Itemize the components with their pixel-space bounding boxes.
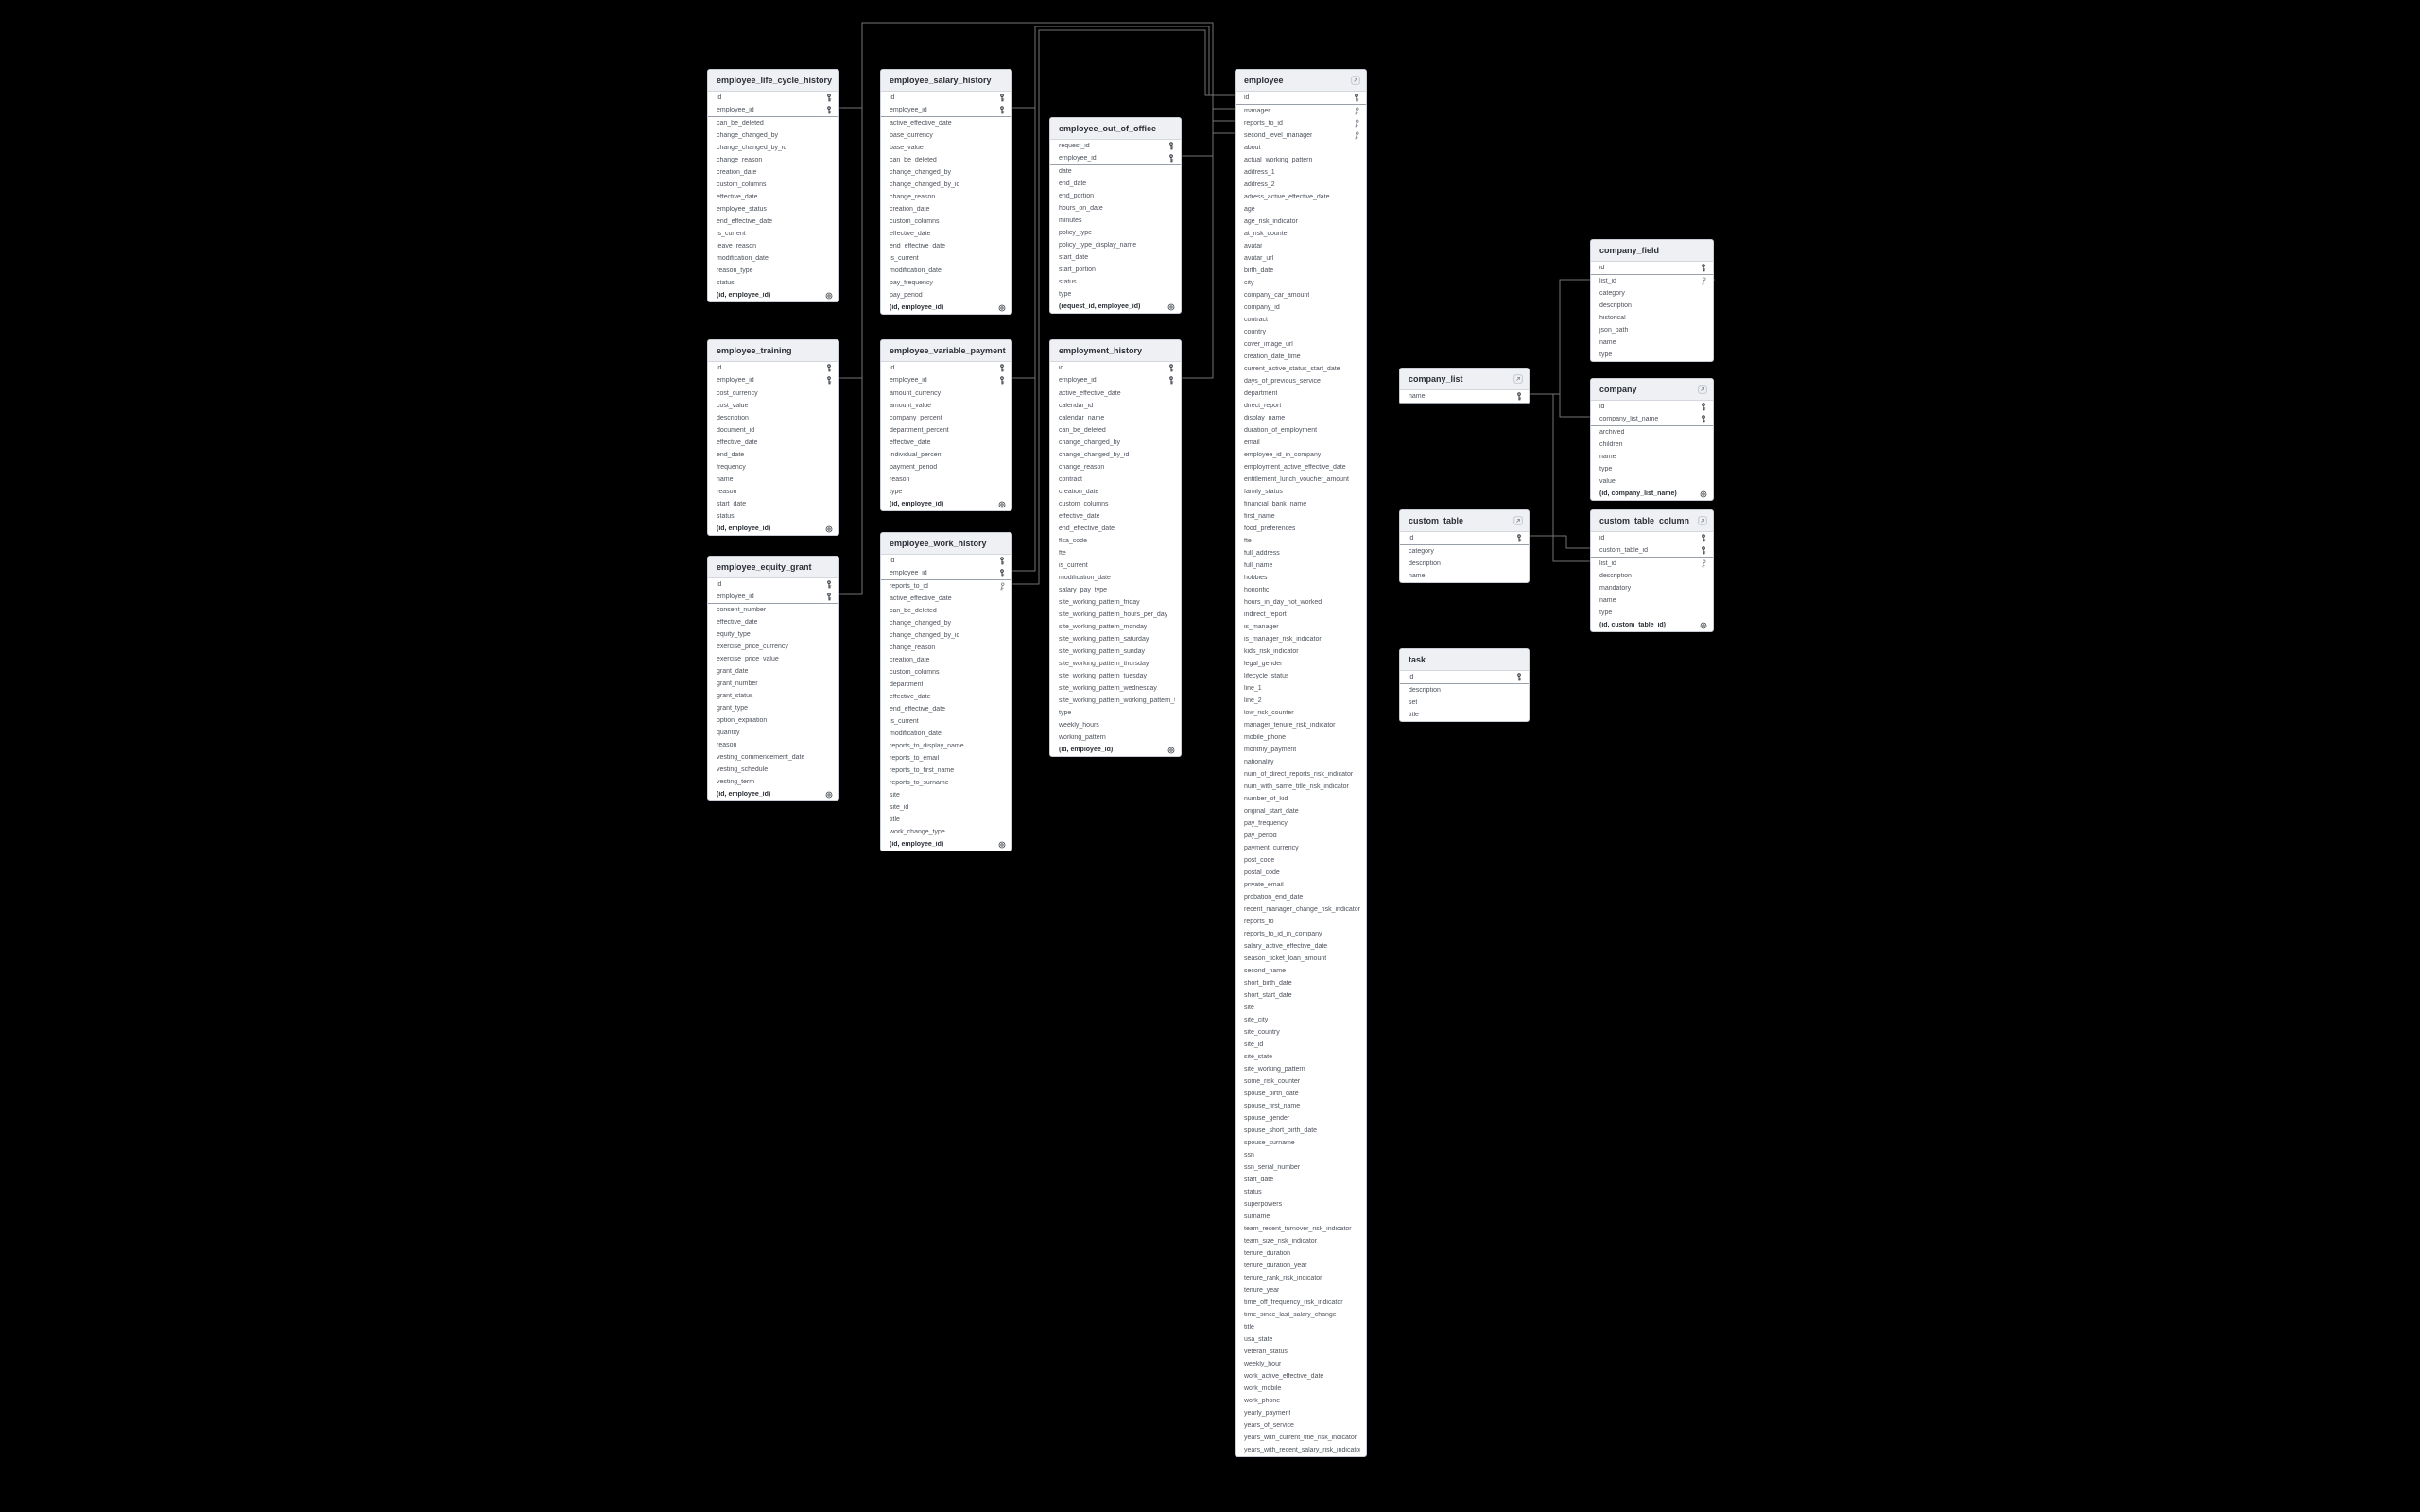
field-row[interactable]: id <box>1591 401 1713 413</box>
field-row[interactable]: number_of_kid <box>1236 793 1366 805</box>
field-row[interactable]: company_id <box>1236 301 1366 314</box>
field-row[interactable]: fte <box>1236 535 1366 547</box>
field-row[interactable]: frequency <box>708 461 838 473</box>
field-row[interactable]: salary_active_effective_date <box>1236 940 1366 953</box>
field-row[interactable]: grant_type <box>708 702 838 714</box>
field-row[interactable]: department <box>881 679 1011 691</box>
field-row[interactable]: site_working_pattern_friday <box>1050 596 1181 609</box>
field-row[interactable]: (id, employee_id) <box>1050 744 1181 756</box>
field-row[interactable]: employee_id <box>708 374 838 387</box>
field-row[interactable]: yearly_payment <box>1236 1407 1366 1419</box>
field-row[interactable]: reason_type <box>708 265 838 277</box>
field-row[interactable]: ssn_serial_number <box>1236 1161 1366 1174</box>
table-header[interactable]: company_list <box>1400 369 1529 390</box>
field-row[interactable]: reason <box>708 486 838 498</box>
field-row[interactable]: employee_id <box>708 104 838 117</box>
field-row[interactable]: active_effective_date <box>1050 387 1181 400</box>
field-row[interactable]: spouse_birth_date <box>1236 1088 1366 1100</box>
field-row[interactable]: start_portion <box>1050 264 1181 276</box>
field-row[interactable]: active_effective_date <box>881 117 1011 129</box>
field-row[interactable]: grant_status <box>708 690 838 702</box>
field-row[interactable]: spouse_first_name <box>1236 1100 1366 1112</box>
field-row[interactable]: low_risk_counter <box>1236 707 1366 719</box>
field-row[interactable]: site_id <box>881 801 1011 814</box>
table-employee_salary_history[interactable]: employee_salary_historyidemployee_idacti… <box>880 69 1012 315</box>
field-row[interactable]: effective_date <box>1050 510 1181 523</box>
field-row[interactable]: base_currency <box>881 129 1011 142</box>
field-row[interactable]: weekly_hour <box>1236 1358 1366 1370</box>
field-row[interactable]: country <box>1236 326 1366 338</box>
field-row[interactable]: end_effective_date <box>881 703 1011 715</box>
field-row[interactable]: years_with_current_title_risk_indicator <box>1236 1432 1366 1444</box>
field-row[interactable]: work_active_effective_date <box>1236 1370 1366 1383</box>
field-row[interactable]: (request_id, employee_id) <box>1050 301 1181 313</box>
field-row[interactable]: id <box>881 555 1011 567</box>
field-row[interactable]: is_current <box>881 715 1011 728</box>
field-row[interactable]: site_working_pattern <box>1236 1063 1366 1075</box>
field-row[interactable]: full_address <box>1236 547 1366 559</box>
field-row[interactable]: exercise_price_value <box>708 653 838 665</box>
field-row[interactable]: creation_date <box>881 203 1011 215</box>
field-row[interactable]: pay_frequency <box>1236 817 1366 830</box>
field-row[interactable]: ssn <box>1236 1149 1366 1161</box>
table-task[interactable]: taskiddescriptionsettitle <box>1399 648 1530 722</box>
field-row[interactable]: work_mobile <box>1236 1383 1366 1395</box>
field-row[interactable]: individual_percent <box>881 449 1011 461</box>
field-row[interactable]: birth_date <box>1236 265 1366 277</box>
field-row[interactable]: is_current <box>708 228 838 240</box>
field-row[interactable]: company_car_amount <box>1236 289 1366 301</box>
field-row[interactable]: list_id <box>1591 275 1713 287</box>
field-row[interactable]: site_working_pattern_working_pattern_typ… <box>1050 695 1181 707</box>
field-row[interactable]: reports_to_display_name <box>881 740 1011 752</box>
field-row[interactable]: site_country <box>1236 1026 1366 1039</box>
table-header[interactable]: employee_salary_history <box>881 70 1011 92</box>
field-row[interactable]: avatar <box>1236 240 1366 252</box>
field-row[interactable]: manager_tenure_risk_indicator <box>1236 719 1366 731</box>
table-company_field[interactable]: company_fieldidlist_idcategorydescriptio… <box>1590 239 1714 362</box>
field-row[interactable]: (id, employee_id) <box>708 523 838 535</box>
field-row[interactable]: id <box>708 92 838 104</box>
table-employee_work_history[interactable]: employee_work_historyidemployee_idreport… <box>880 532 1012 851</box>
field-row[interactable]: id <box>1591 262 1713 275</box>
field-row[interactable]: hours_in_day_not_worked <box>1236 596 1366 609</box>
field-row[interactable]: line_2 <box>1236 695 1366 707</box>
field-row[interactable]: team_size_risk_indicator <box>1236 1235 1366 1247</box>
field-row[interactable]: name <box>1591 594 1713 607</box>
field-row[interactable]: reports_to_id_in_company <box>1236 928 1366 940</box>
field-row[interactable]: type <box>1050 288 1181 301</box>
field-row[interactable]: custom_columns <box>708 179 838 191</box>
field-row[interactable]: nationality <box>1236 756 1366 768</box>
field-row[interactable]: list_id <box>1591 558 1713 570</box>
field-row[interactable]: active_effective_date <box>881 593 1011 605</box>
field-row[interactable]: start_date <box>708 498 838 510</box>
field-row[interactable]: flsa_code <box>1050 535 1181 547</box>
field-row[interactable]: address_2 <box>1236 179 1366 191</box>
field-row[interactable]: site_working_pattern_tuesday <box>1050 670 1181 682</box>
field-row[interactable]: change_reason <box>881 642 1011 654</box>
table-custom_table[interactable]: custom_tableidcategorydescriptionname <box>1399 509 1530 583</box>
field-row[interactable]: type <box>1591 463 1713 475</box>
field-row[interactable]: creation_date <box>1050 486 1181 498</box>
field-row[interactable]: veteran_status <box>1236 1346 1366 1358</box>
field-row[interactable]: equity_type <box>708 628 838 641</box>
field-row[interactable]: leave_reason <box>708 240 838 252</box>
field-row[interactable]: policy_type_display_name <box>1050 239 1181 251</box>
field-row[interactable]: reason <box>708 739 838 751</box>
field-row[interactable]: site_working_pattern_wednesday <box>1050 682 1181 695</box>
field-row[interactable]: amount_currency <box>881 387 1011 400</box>
field-row[interactable]: mobile_phone <box>1236 731 1366 744</box>
field-row[interactable]: children <box>1591 438 1713 451</box>
field-row[interactable]: change_changed_by_id <box>881 629 1011 642</box>
field-row[interactable]: custom_table_id <box>1591 544 1713 558</box>
field-row[interactable]: hobbies <box>1236 572 1366 584</box>
field-row[interactable]: custom_columns <box>881 215 1011 228</box>
field-row[interactable]: tenure_duration_year <box>1236 1260 1366 1272</box>
field-row[interactable]: base_value <box>881 142 1011 154</box>
table-header[interactable]: employee_life_cycle_history <box>708 70 838 92</box>
field-row[interactable]: id <box>1236 92 1366 105</box>
field-row[interactable]: address_1 <box>1236 166 1366 179</box>
field-row[interactable]: current_active_status_start_date <box>1236 363 1366 375</box>
field-row[interactable]: site_working_pattern_sunday <box>1050 645 1181 658</box>
field-row[interactable]: second_name <box>1236 965 1366 977</box>
field-row[interactable]: can_be_deleted <box>881 154 1011 166</box>
field-row[interactable]: policy_type <box>1050 227 1181 239</box>
field-row[interactable]: end_effective_date <box>708 215 838 228</box>
field-row[interactable]: short_birth_date <box>1236 977 1366 989</box>
field-row[interactable]: custom_columns <box>1050 498 1181 510</box>
field-row[interactable]: department_percent <box>881 424 1011 437</box>
field-row[interactable]: site <box>1236 1002 1366 1014</box>
field-row[interactable]: tenure_rank_risk_indicator <box>1236 1272 1366 1284</box>
field-row[interactable]: pay_frequency <box>881 277 1011 289</box>
field-row[interactable]: legal_gender <box>1236 658 1366 670</box>
field-row[interactable]: full_name <box>1236 559 1366 572</box>
field-row[interactable]: description <box>1591 300 1713 312</box>
field-row[interactable]: end_date <box>1050 178 1181 190</box>
field-row[interactable]: change_reason <box>708 154 838 166</box>
field-row[interactable]: (id, employee_id) <box>708 788 838 800</box>
field-row[interactable]: reports_to_first_name <box>881 765 1011 777</box>
field-row[interactable]: creation_date <box>708 166 838 179</box>
field-row[interactable]: avatar_url <box>1236 252 1366 265</box>
field-row[interactable]: original_start_date <box>1236 805 1366 817</box>
field-row[interactable]: set <box>1400 696 1529 709</box>
field-row[interactable]: superpowers <box>1236 1198 1366 1211</box>
field-row[interactable]: company_percent <box>881 412 1011 424</box>
field-row[interactable]: option_expiration <box>708 714 838 727</box>
field-row[interactable]: years_of_service <box>1236 1419 1366 1432</box>
field-row[interactable]: payment_currency <box>1236 842 1366 854</box>
field-row[interactable]: department <box>1236 387 1366 400</box>
field-row[interactable]: grant_date <box>708 665 838 678</box>
field-row[interactable]: archived <box>1591 426 1713 438</box>
field-row[interactable]: actual_working_pattern <box>1236 154 1366 166</box>
field-row[interactable]: title <box>1400 709 1529 721</box>
field-row[interactable]: end_effective_date <box>881 240 1011 252</box>
field-row[interactable]: effective_date <box>881 228 1011 240</box>
field-row[interactable]: monthly_payment <box>1236 744 1366 756</box>
field-row[interactable]: some_risk_counter <box>1236 1075 1366 1088</box>
field-row[interactable]: postal_code <box>1236 867 1366 879</box>
field-row[interactable]: description <box>708 412 838 424</box>
field-row[interactable]: id <box>1400 671 1529 684</box>
field-row[interactable]: id <box>708 578 838 591</box>
field-row[interactable]: spouse_gender <box>1236 1112 1366 1125</box>
field-row[interactable]: json_path <box>1591 324 1713 336</box>
field-row[interactable]: employee_id <box>881 374 1011 387</box>
field-row[interactable]: name <box>1591 451 1713 463</box>
field-row[interactable]: employee_id <box>881 567 1011 580</box>
field-row[interactable]: status <box>708 277 838 289</box>
field-row[interactable]: vesting_schedule <box>708 764 838 776</box>
erd-canvas[interactable]: employee_life_cycle_historyidemployee_id… <box>0 0 2420 1512</box>
field-row[interactable]: working_pattern <box>1050 731 1181 744</box>
field-row[interactable]: can_be_deleted <box>1050 424 1181 437</box>
table-employee_variable_payment[interactable]: employee_variable_paymentidemployee_idam… <box>880 339 1012 511</box>
field-row[interactable]: display_name <box>1236 412 1366 424</box>
field-row[interactable]: duration_of_employment <box>1236 424 1366 437</box>
field-row[interactable]: site_working_pattern_hours_per_day <box>1050 609 1181 621</box>
field-row[interactable]: change_changed_by <box>881 617 1011 629</box>
field-row[interactable]: effective_date <box>708 191 838 203</box>
table-company_list[interactable]: company_listname <box>1399 368 1530 404</box>
table-employment_history[interactable]: employment_historyidemployee_idactive_ef… <box>1049 339 1182 757</box>
field-row[interactable]: type <box>1591 349 1713 361</box>
field-row[interactable]: change_changed_by <box>881 166 1011 179</box>
field-row[interactable]: id <box>708 362 838 374</box>
field-row[interactable]: status <box>708 510 838 523</box>
field-row[interactable]: (id, employee_id) <box>708 289 838 301</box>
field-row[interactable]: kids_risk_indicator <box>1236 645 1366 658</box>
field-row[interactable]: financial_bank_name <box>1236 498 1366 510</box>
field-row[interactable]: probation_end_date <box>1236 891 1366 903</box>
field-row[interactable]: end_effective_date <box>1050 523 1181 535</box>
field-row[interactable]: name <box>1400 390 1529 404</box>
field-row[interactable]: change_changed_by <box>1050 437 1181 449</box>
field-row[interactable]: end_portion <box>1050 190 1181 202</box>
field-row[interactable]: title <box>881 814 1011 826</box>
field-row[interactable]: lifecycle_status <box>1236 670 1366 682</box>
field-row[interactable]: pay_period <box>1236 830 1366 842</box>
field-row[interactable]: tenure_year <box>1236 1284 1366 1297</box>
table-header[interactable]: employment_history <box>1050 340 1181 362</box>
field-row[interactable]: tenure_duration <box>1236 1247 1366 1260</box>
field-row[interactable]: cost_currency <box>708 387 838 400</box>
field-row[interactable]: change_reason <box>881 191 1011 203</box>
field-row[interactable]: is_manager_risk_indicator <box>1236 633 1366 645</box>
field-row[interactable]: private_email <box>1236 879 1366 891</box>
field-row[interactable]: cover_image_url <box>1236 338 1366 351</box>
field-row[interactable]: start_date <box>1050 251 1181 264</box>
field-row[interactable]: id <box>1591 532 1713 544</box>
field-row[interactable]: status <box>1050 276 1181 288</box>
field-row[interactable]: modification_date <box>1050 572 1181 584</box>
field-row[interactable]: type <box>1591 607 1713 619</box>
field-row[interactable]: custom_columns <box>881 666 1011 679</box>
field-row[interactable]: employee_id_in_company <box>1236 449 1366 461</box>
field-row[interactable]: reports_to <box>1236 916 1366 928</box>
field-row[interactable]: employee_id <box>708 591 838 604</box>
field-row[interactable]: work_phone <box>1236 1395 1366 1407</box>
field-row[interactable]: site_id <box>1236 1039 1366 1051</box>
field-row[interactable]: team_recent_turnover_risk_indicator <box>1236 1223 1366 1235</box>
table-employee_life_cycle_history[interactable]: employee_life_cycle_historyidemployee_id… <box>707 69 839 302</box>
field-row[interactable]: site_working_pattern_saturday <box>1050 633 1181 645</box>
field-row[interactable]: creation_date <box>881 654 1011 666</box>
field-row[interactable]: first_name <box>1236 510 1366 523</box>
field-row[interactable]: id <box>1400 532 1529 545</box>
field-row[interactable]: change_changed_by_id <box>881 179 1011 191</box>
table-employee_equity_grant[interactable]: employee_equity_grantidemployee_idconsen… <box>707 556 839 801</box>
field-row[interactable]: adress_active_effective_date <box>1236 191 1366 203</box>
field-row[interactable]: creation_date_time <box>1236 351 1366 363</box>
field-row[interactable]: indirect_report <box>1236 609 1366 621</box>
field-row[interactable]: reports_to_id <box>1236 117 1366 129</box>
field-row[interactable]: description <box>1400 558 1529 570</box>
field-row[interactable]: effective_date <box>708 437 838 449</box>
table-header[interactable]: employee_variable_payment <box>881 340 1011 362</box>
field-row[interactable]: change_changed_by_id <box>1050 449 1181 461</box>
field-row[interactable]: entitlement_lunch_voucher_amount <box>1236 473 1366 486</box>
field-row[interactable]: (id, custom_table_id) <box>1591 619 1713 631</box>
table-header[interactable]: employee_work_history <box>881 533 1011 555</box>
field-row[interactable]: description <box>1591 570 1713 582</box>
field-row[interactable]: contract <box>1236 314 1366 326</box>
table-header[interactable]: task <box>1400 649 1529 671</box>
field-row[interactable]: site_working_pattern_thursday <box>1050 658 1181 670</box>
field-row[interactable]: calendar_name <box>1050 412 1181 424</box>
field-row[interactable]: season_ticket_loan_amount <box>1236 953 1366 965</box>
field-row[interactable]: effective_date <box>881 437 1011 449</box>
field-row[interactable]: site_working_pattern_monday <box>1050 621 1181 633</box>
field-row[interactable]: second_level_manager <box>1236 129 1366 142</box>
field-row[interactable]: employee_status <box>708 203 838 215</box>
field-row[interactable]: company_list_name <box>1591 413 1713 426</box>
field-row[interactable]: email <box>1236 437 1366 449</box>
field-row[interactable]: num_with_same_title_risk_indicator <box>1236 781 1366 793</box>
field-row[interactable]: can_be_deleted <box>708 117 838 129</box>
field-row[interactable]: status <box>1236 1186 1366 1198</box>
field-row[interactable]: employee_id <box>1050 374 1181 387</box>
field-row[interactable]: usa_state <box>1236 1333 1366 1346</box>
field-row[interactable]: name <box>1591 336 1713 349</box>
field-row[interactable]: id <box>881 362 1011 374</box>
field-row[interactable]: cost_value <box>708 400 838 412</box>
field-row[interactable]: short_start_date <box>1236 989 1366 1002</box>
field-row[interactable]: start_date <box>1236 1174 1366 1186</box>
field-row[interactable]: modification_date <box>881 265 1011 277</box>
field-row[interactable]: type <box>1050 707 1181 719</box>
field-row[interactable]: (id, employee_id) <box>881 838 1011 850</box>
field-row[interactable]: reason <box>881 473 1011 486</box>
field-row[interactable]: minutes <box>1050 215 1181 227</box>
table-company[interactable]: companyidcompany_list_namearchivedchildr… <box>1590 378 1714 501</box>
field-row[interactable]: effective_date <box>708 616 838 628</box>
field-row[interactable]: exercise_price_currency <box>708 641 838 653</box>
field-row[interactable]: request_id <box>1050 140 1181 152</box>
field-row[interactable]: years_with_recent_salary_risk_indicator <box>1236 1444 1366 1456</box>
field-row[interactable]: (id, employee_id) <box>881 498 1011 510</box>
table-employee_out_of_office[interactable]: employee_out_of_officerequest_idemployee… <box>1049 117 1182 314</box>
field-row[interactable]: mandatory <box>1591 582 1713 594</box>
field-row[interactable]: quantity <box>708 727 838 739</box>
field-row[interactable]: date <box>1050 165 1181 178</box>
table-employee[interactable]: employeeidmanagerreports_to_idsecond_lev… <box>1235 69 1367 1457</box>
table-custom_table_column[interactable]: custom_table_columnidcustom_table_idlist… <box>1590 509 1714 632</box>
table-header[interactable]: employee <box>1236 70 1366 92</box>
field-row[interactable]: employee_id <box>881 104 1011 117</box>
field-row[interactable]: vesting_commencement_date <box>708 751 838 764</box>
field-row[interactable]: document_id <box>708 424 838 437</box>
table-header[interactable]: company_field <box>1591 240 1713 262</box>
field-row[interactable]: grant_number <box>708 678 838 690</box>
table-header[interactable]: employee_equity_grant <box>708 557 838 578</box>
field-row[interactable]: (id, employee_id) <box>881 301 1011 314</box>
field-row[interactable]: employment_active_effective_date <box>1236 461 1366 473</box>
field-row[interactable]: id <box>1050 362 1181 374</box>
field-row[interactable]: spouse_short_birth_date <box>1236 1125 1366 1137</box>
field-row[interactable]: name <box>1400 570 1529 582</box>
field-row[interactable]: surname <box>1236 1211 1366 1223</box>
field-row[interactable]: direct_report <box>1236 400 1366 412</box>
field-row[interactable]: time_since_last_salary_change <box>1236 1309 1366 1321</box>
field-row[interactable]: work_change_type <box>881 826 1011 838</box>
table-header[interactable]: employee_out_of_office <box>1050 118 1181 140</box>
field-row[interactable]: calendar_id <box>1050 400 1181 412</box>
field-row[interactable]: modification_date <box>881 728 1011 740</box>
field-row[interactable]: effective_date <box>881 691 1011 703</box>
table-header[interactable]: custom_table <box>1400 510 1529 532</box>
table-header[interactable]: employee_training <box>708 340 838 362</box>
field-row[interactable]: is_current <box>881 252 1011 265</box>
field-row[interactable]: contract <box>1050 473 1181 486</box>
field-row[interactable]: age_risk_indicator <box>1236 215 1366 228</box>
field-row[interactable]: employee_id <box>1050 152 1181 165</box>
field-row[interactable]: site_state <box>1236 1051 1366 1063</box>
field-row[interactable]: time_off_frequency_risk_indicator <box>1236 1297 1366 1309</box>
field-row[interactable]: weekly_hours <box>1050 719 1181 731</box>
field-row[interactable]: age <box>1236 203 1366 215</box>
field-row[interactable]: reports_to_id <box>881 580 1011 593</box>
field-row[interactable]: food_preferences <box>1236 523 1366 535</box>
field-row[interactable]: about <box>1236 142 1366 154</box>
field-row[interactable]: post_code <box>1236 854 1366 867</box>
field-row[interactable]: honorific <box>1236 584 1366 596</box>
field-row[interactable]: recent_manager_change_risk_indicator <box>1236 903 1366 916</box>
field-row[interactable]: reports_to_surname <box>881 777 1011 789</box>
table-header[interactable]: custom_table_column <box>1591 510 1713 532</box>
field-row[interactable]: manager <box>1236 105 1366 117</box>
field-row[interactable]: city <box>1236 277 1366 289</box>
field-row[interactable]: line_1 <box>1236 682 1366 695</box>
field-row[interactable]: site_city <box>1236 1014 1366 1026</box>
field-row[interactable]: reports_to_email <box>881 752 1011 765</box>
field-row[interactable]: modification_date <box>708 252 838 265</box>
field-row[interactable]: description <box>1400 684 1529 696</box>
field-row[interactable]: title <box>1236 1321 1366 1333</box>
field-row[interactable]: change_reason <box>1050 461 1181 473</box>
field-row[interactable]: historical <box>1591 312 1713 324</box>
field-row[interactable]: spouse_surname <box>1236 1137 1366 1149</box>
field-row[interactable]: end_date <box>708 449 838 461</box>
field-row[interactable]: fte <box>1050 547 1181 559</box>
field-row[interactable]: site <box>881 789 1011 801</box>
field-row[interactable]: consent_number <box>708 604 838 616</box>
